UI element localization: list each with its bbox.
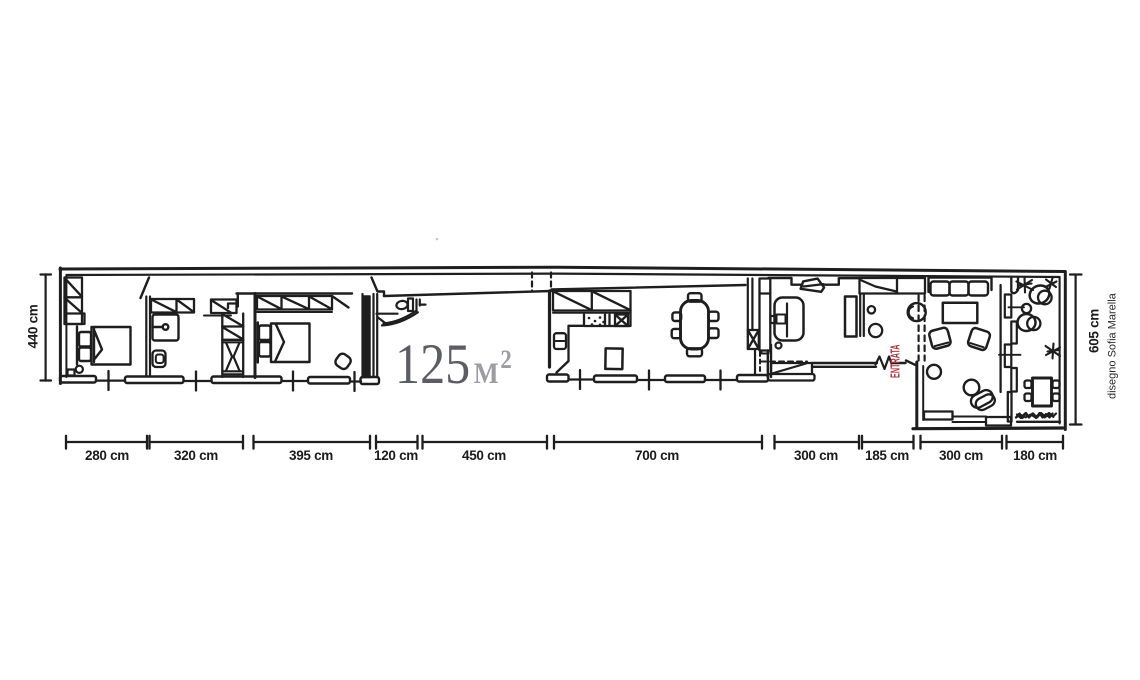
svg-text:120 cm: 120 cm <box>374 448 418 463</box>
svg-text:605 cm: 605 cm <box>1087 309 1102 353</box>
svg-text:395 cm: 395 cm <box>289 448 333 463</box>
svg-text:320 cm: 320 cm <box>174 448 218 463</box>
svg-text:ENTRATA: ENTRATA <box>890 344 903 378</box>
svg-text:180 cm: 180 cm <box>1013 448 1057 463</box>
svg-text:440 cm: 440 cm <box>26 304 41 348</box>
svg-text:280 cm: 280 cm <box>85 448 129 463</box>
svg-text:185 cm: 185 cm <box>865 448 909 463</box>
svg-text:450 cm: 450 cm <box>462 448 506 463</box>
svg-text:125M2: 125M2 <box>395 332 512 396</box>
svg-text:300 cm: 300 cm <box>794 448 838 463</box>
svg-text:disegno Sofia Marella: disegno Sofia Marella <box>1107 292 1119 399</box>
svg-text:300 cm: 300 cm <box>939 448 983 463</box>
svg-text:700 cm: 700 cm <box>635 448 679 463</box>
